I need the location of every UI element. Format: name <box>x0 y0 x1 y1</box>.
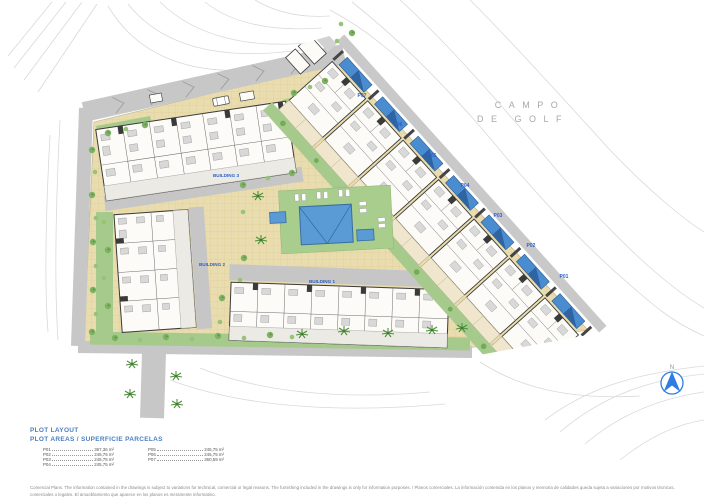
golf-course-label-line2: DE GOLF <box>477 114 569 124</box>
compass: N <box>661 364 683 394</box>
building-1-label: BUILDING 1 <box>309 279 335 284</box>
kids-pool-left <box>270 212 287 224</box>
plot-label-p06: P06 <box>394 122 403 128</box>
plot-label-p07: P07 <box>358 93 367 99</box>
golf-course-label-line1: CAMPO <box>495 100 566 110</box>
kids-pool-right <box>357 229 375 241</box>
road-left <box>78 108 86 346</box>
main-pool <box>299 204 353 245</box>
plot-label-p04: P04 <box>461 183 470 189</box>
site-plan: CAMPO DE GOLF <box>0 0 705 504</box>
plot-label-p01: P01 <box>560 274 569 280</box>
building-2 <box>114 210 196 333</box>
plot-label-p05: P05 <box>428 153 437 159</box>
site-plan-canvas: CAMPO DE GOLF <box>0 0 705 504</box>
building-1 <box>229 282 449 348</box>
amenity-area <box>268 185 393 254</box>
road-access <box>152 352 154 418</box>
plot-label-p03: P03 <box>494 213 503 219</box>
compass-north-label: N <box>670 364 675 371</box>
building-2-label: BUILDING 2 <box>199 262 225 267</box>
building-3-label: BUILDING 3 <box>213 173 239 178</box>
plot-label-p02: P02 <box>527 243 536 249</box>
